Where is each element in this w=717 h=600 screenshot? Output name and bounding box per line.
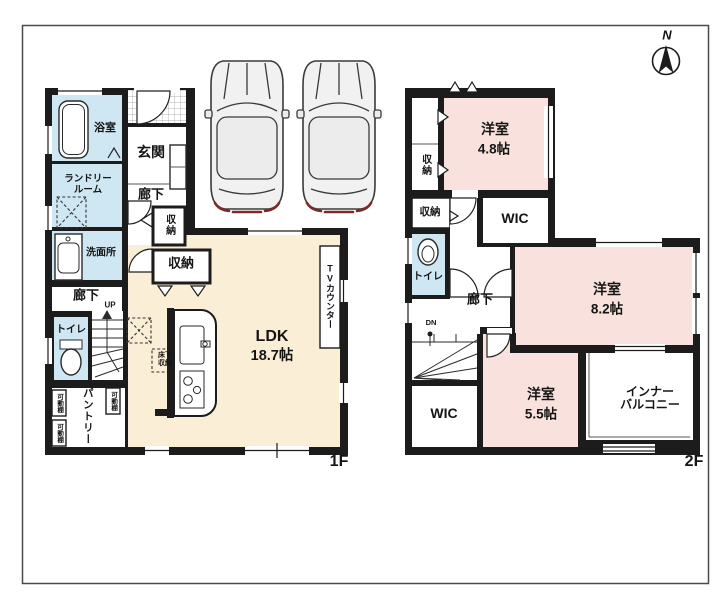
- car-icon: [297, 61, 381, 212]
- label-toilet-2f: トイレ: [413, 271, 443, 282]
- label-closet-2f-left: 収納: [419, 154, 430, 176]
- label-wic-lower: WIC: [430, 406, 457, 422]
- label-shelf-a: 可動棚: [55, 393, 62, 413]
- label-underfloor-line2: 収納: [158, 360, 172, 368]
- label-hall-2f: 廊下: [467, 293, 493, 308]
- kitchen-sink: [180, 326, 204, 364]
- label-ldk-size: 18.7帖: [251, 348, 294, 364]
- toilet-bowl-1f: [61, 349, 81, 375]
- toilet-tank-1f: [60, 340, 82, 349]
- label-closet-ldk: 収納: [168, 257, 194, 272]
- label-pantry: パントリー: [81, 387, 93, 445]
- label-room48-name: 洋室: [481, 122, 509, 138]
- label-floor1: 1F: [330, 453, 349, 471]
- label-room82-name: 洋室: [593, 282, 621, 298]
- label-toilet-1f: トイレ: [56, 324, 86, 335]
- label-bath: 浴室: [94, 122, 116, 134]
- label-compass-north: N: [662, 29, 671, 44]
- floorplan-page: 浴室 ランドリー ルーム 玄関 廊下 洗面所 収納 収納 廊下 UP トイレ パ…: [0, 0, 717, 600]
- label-room82-size: 8.2帖: [591, 301, 623, 316]
- label-dn: DN: [426, 319, 437, 327]
- label-tv-counter: TVカウンター: [325, 264, 335, 329]
- label-wic-upper: WIC: [501, 211, 528, 227]
- label-entrance: 玄関: [137, 145, 165, 161]
- label-room55-name: 洋室: [527, 387, 555, 403]
- label-laundry: ランドリー ルーム: [64, 174, 112, 195]
- label-balcony: インナー バルコニー: [620, 386, 680, 413]
- label-laundry-line2: ルーム: [64, 185, 112, 196]
- label-closet-hall: 収納: [163, 214, 174, 236]
- label-hall-upper: 廊下: [138, 188, 164, 203]
- label-up: UP: [104, 302, 115, 311]
- label-closet-2f-mid: 収納: [420, 207, 441, 219]
- label-hall-lower: 廊下: [73, 289, 99, 304]
- label-shelf-c: 可動棚: [109, 391, 116, 411]
- label-balcony-line2: バルコニー: [620, 399, 680, 412]
- parking-cars: [205, 61, 381, 212]
- car-icon: [205, 61, 289, 212]
- label-underfloor-line1: 床下: [158, 352, 172, 360]
- compass-icon: [653, 45, 680, 75]
- label-floor2: 2F: [685, 453, 704, 471]
- label-room55-size: 5.5帖: [525, 406, 557, 421]
- label-shelf-b: 可動棚: [55, 423, 62, 443]
- label-underfloor: 床下 収納: [158, 352, 172, 368]
- label-washroom: 洗面所: [86, 247, 116, 258]
- label-balcony-line1: インナー: [620, 386, 680, 399]
- label-room48-size: 4.8帖: [478, 141, 510, 156]
- label-ldk-name: LDK: [256, 328, 289, 346]
